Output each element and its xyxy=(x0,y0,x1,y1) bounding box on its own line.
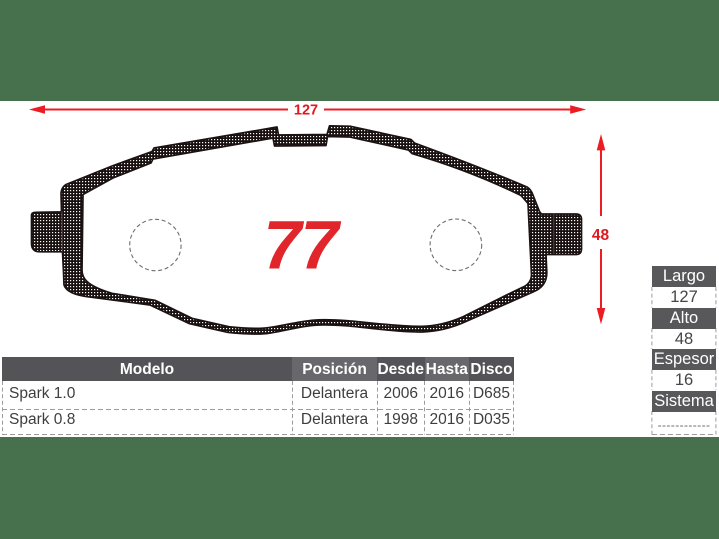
svg-text:48: 48 xyxy=(592,227,610,244)
svg-text:127: 127 xyxy=(294,103,318,119)
svg-text:77: 77 xyxy=(263,207,341,284)
